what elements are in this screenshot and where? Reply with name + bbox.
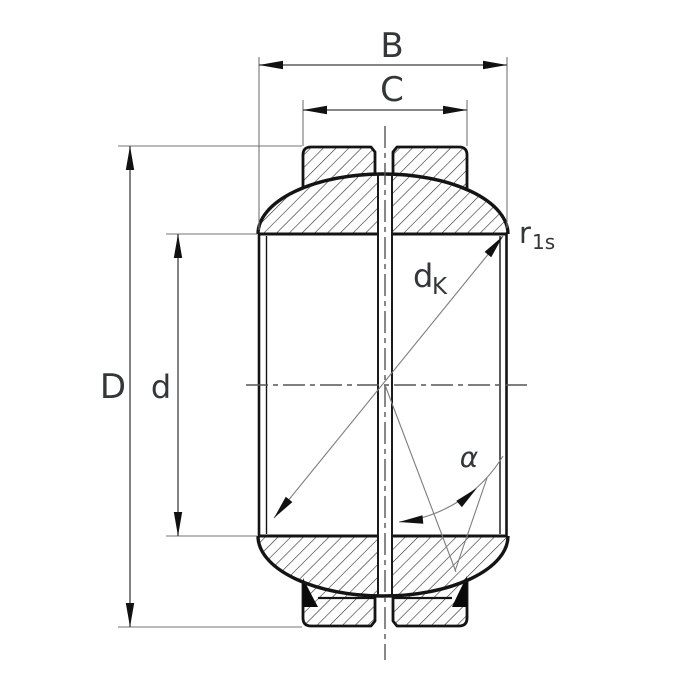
bearing-drawing-canvas: B C D d d K r 1s α	[0, 0, 700, 700]
label-d: d	[151, 368, 171, 406]
dimension-line-dK	[274, 236, 503, 518]
label-B: B	[380, 26, 403, 66]
label-r1s-sub: 1s	[532, 230, 555, 254]
spherical-plain-bearing-diagram: B C D d d K r 1s α	[0, 0, 700, 700]
label-D: D	[100, 367, 126, 407]
label-dK-main: d	[413, 257, 433, 295]
label-dK-sub: K	[432, 274, 448, 300]
label-C: C	[380, 70, 404, 110]
label-alpha: α	[460, 441, 479, 474]
label-r1s-main: r	[519, 216, 531, 250]
inner-ring-section-bottom	[258, 536, 508, 596]
inner-ring-section-top	[258, 174, 508, 234]
